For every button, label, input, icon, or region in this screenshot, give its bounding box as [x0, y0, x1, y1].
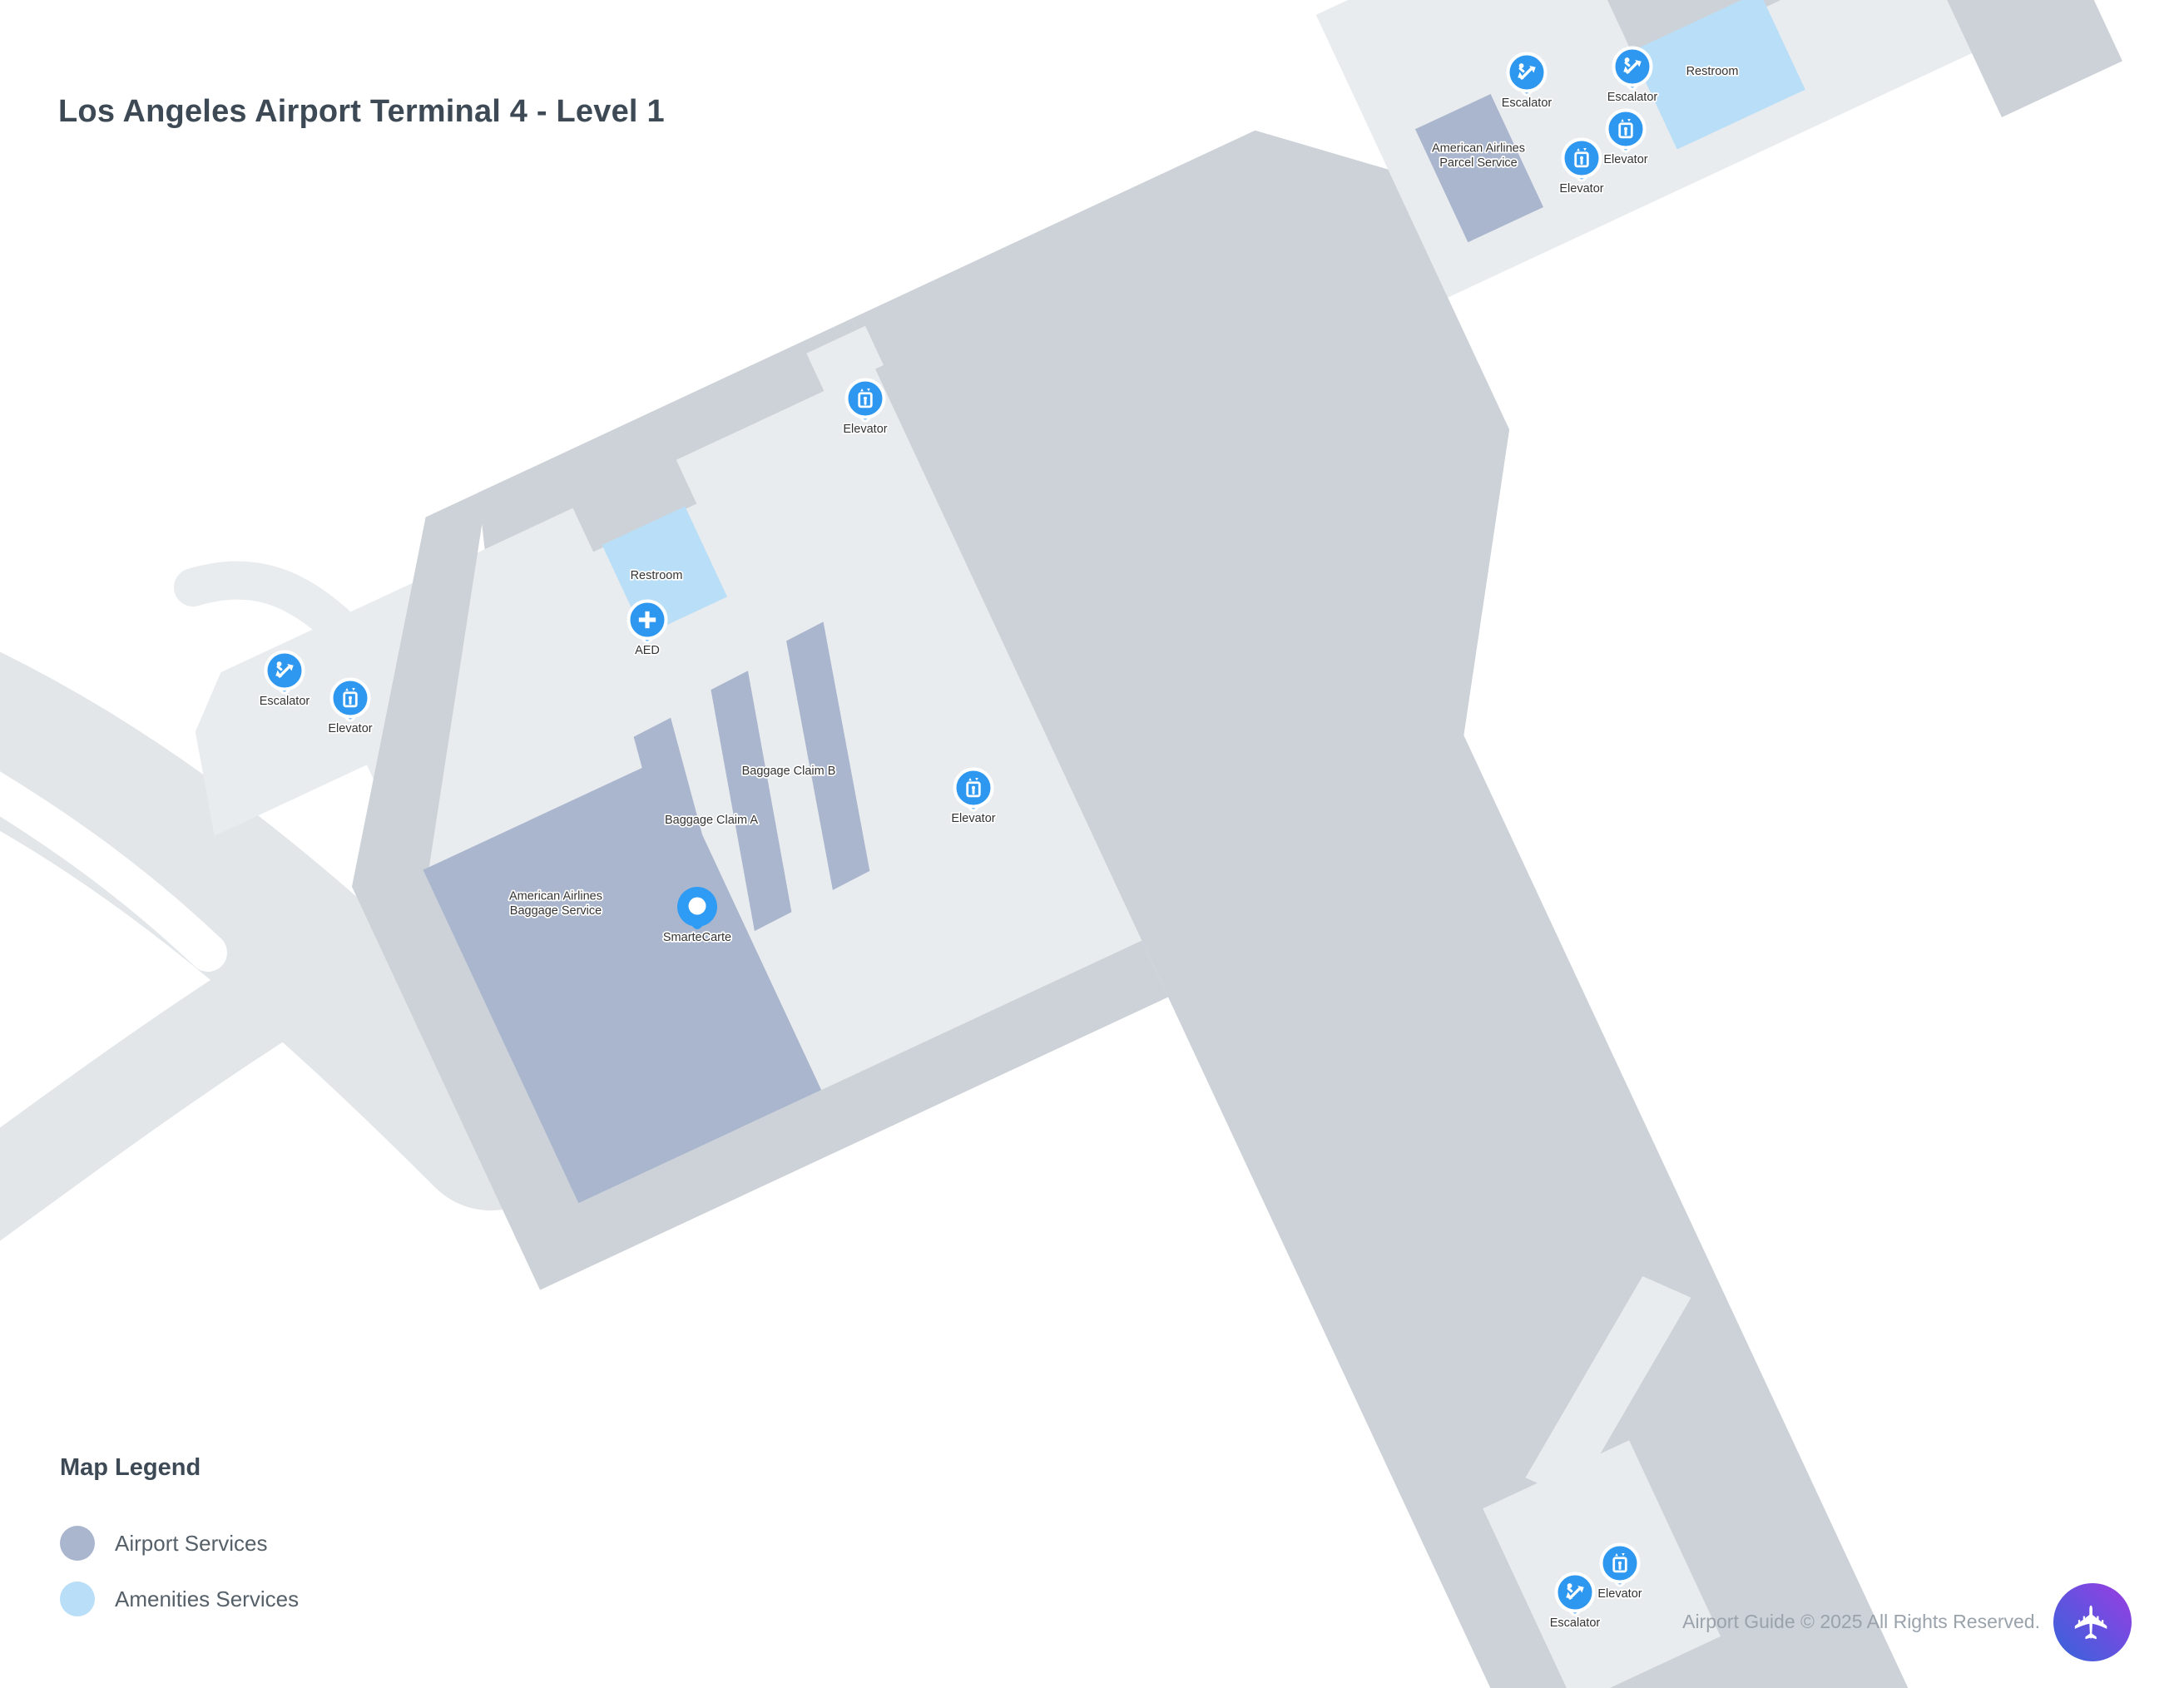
pin-escalator-northeast-2[interactable] [1614, 48, 1652, 90]
pin-elevator-central-east[interactable] [955, 770, 993, 811]
legend-label-airport-services: Airport Services [115, 1531, 268, 1557]
legend-swatch-airport-services [60, 1526, 95, 1561]
pin-label-aed: AED [635, 644, 660, 657]
pin-label-smartecarte: SmarteCarte [663, 931, 731, 944]
airplane-icon: ✈ [2069, 1603, 2116, 1642]
legend-item-airport-services: Airport Services [60, 1525, 493, 1562]
legend-label-amenities-services: Amenities Services [115, 1587, 299, 1612]
pin-label-elevator-northeast-2: Elevator [1603, 153, 1647, 166]
copyright-text: Airport Guide © 2025 All Rights Reserved… [1682, 1611, 2040, 1633]
area-label-aa-parcel-service: American AirlinesParcel Service [1432, 141, 1525, 170]
pin-elevator-north-center[interactable] [847, 380, 884, 422]
pin-label-escalator-west: Escalator [260, 695, 310, 708]
legend-item-amenities-services: Amenities Services [60, 1581, 493, 1617]
pin-aed[interactable] [629, 601, 666, 643]
pin-label-elevator-west: Elevator [328, 722, 372, 735]
legend-heading: Map Legend [60, 1454, 493, 1482]
cart-icon [689, 898, 706, 915]
pin-escalator-south[interactable] [1557, 1574, 1594, 1616]
pin-label-escalator-northeast-1: Escalator [1502, 97, 1553, 110]
pin-label-elevator-north-center: Elevator [843, 423, 887, 436]
pin-elevator-northeast-1[interactable] [1563, 140, 1601, 181]
area-label-restroom-northeast: Restroom [1686, 65, 1739, 78]
map-legend: Map Legend Airport ServicesAmenities Ser… [60, 1454, 493, 1636]
pin-elevator-south[interactable] [1602, 1545, 1639, 1587]
pin-smartecarte[interactable] [677, 887, 717, 929]
pin-elevator-west[interactable] [332, 680, 369, 721]
area-label-baggage-claim-a: Baggage Claim A [665, 814, 758, 827]
pin-escalator-northeast-1[interactable] [1508, 54, 1546, 96]
pin-label-escalator-northeast-2: Escalator [1607, 91, 1658, 104]
pin-label-elevator-northeast-1: Elevator [1559, 182, 1603, 196]
area-label-baggage-claim-b: Baggage Claim B [742, 765, 836, 778]
brand-logo: ✈ [2053, 1583, 2132, 1661]
page-title: Los Angeles Airport Terminal 4 - Level 1 [58, 94, 665, 130]
area-label-restroom-central: Restroom [631, 569, 683, 582]
pin-escalator-west[interactable] [266, 652, 304, 694]
legend-swatch-amenities-services [60, 1582, 95, 1616]
pin-elevator-northeast-2[interactable] [1607, 111, 1645, 152]
pin-label-elevator-central-east: Elevator [951, 812, 995, 825]
area-label-aa-baggage-service: American AirlinesBaggage Service [509, 889, 602, 918]
pin-label-elevator-south: Elevator [1597, 1587, 1642, 1601]
pin-label-escalator-south: Escalator [1550, 1616, 1601, 1630]
